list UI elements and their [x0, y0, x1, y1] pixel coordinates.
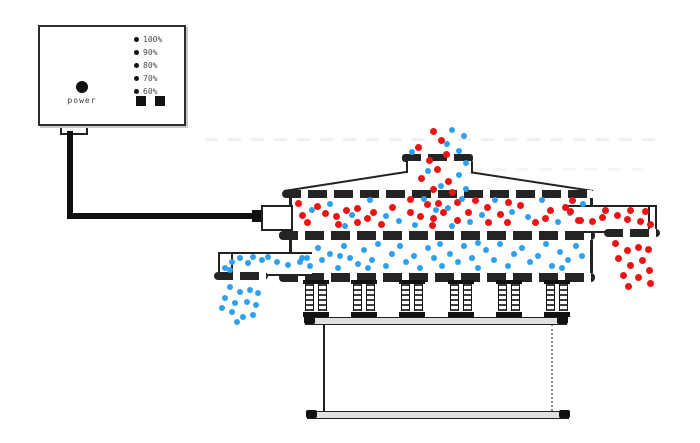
support-spring	[303, 280, 329, 317]
base-top-flange	[305, 317, 567, 325]
lid-clamp-ring	[282, 190, 594, 198]
upper-screen-deck	[289, 198, 593, 231]
coarse-outlet-end-wall	[648, 207, 650, 231]
support-spring	[448, 280, 474, 317]
base-bottom-flange	[307, 411, 569, 419]
motor-connector	[261, 205, 293, 231]
feed-inlet	[406, 161, 473, 173]
lower-deck	[289, 240, 593, 273]
base-cylinder	[323, 324, 553, 411]
support-spring	[496, 280, 522, 317]
screen-mesh-band	[279, 231, 595, 240]
diagram-canvas: power 100% 90% 80% 70% 60%	[0, 0, 700, 443]
support-spring	[544, 280, 570, 317]
support-spring	[351, 280, 377, 317]
coarse-outlet-lip	[604, 229, 660, 237]
fine-outlet-end-wall	[231, 254, 233, 274]
support-spring	[399, 280, 425, 317]
fine-outlet-lip	[214, 272, 268, 280]
